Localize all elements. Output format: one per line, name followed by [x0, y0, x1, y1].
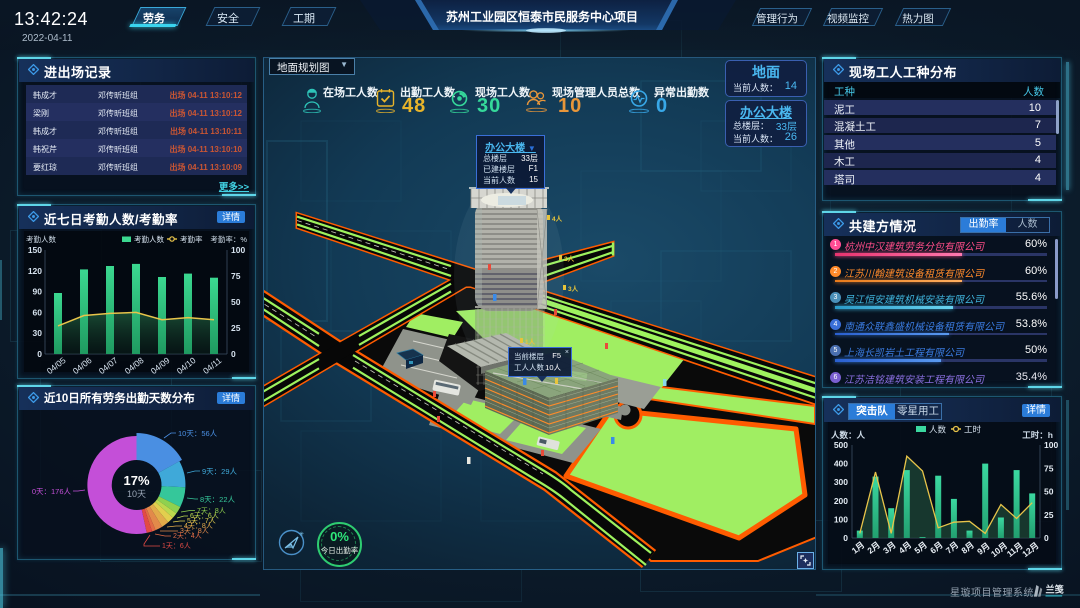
svg-text:兰笺: 兰笺 [1046, 584, 1064, 595]
svg-text:75: 75 [231, 271, 241, 281]
svg-text:50: 50 [1044, 487, 1054, 497]
svg-text:17%: 17% [123, 473, 149, 488]
svg-text:500: 500 [834, 440, 848, 450]
svg-text:90: 90 [33, 287, 43, 297]
svg-text:100: 100 [231, 245, 245, 255]
svg-text:工时: 工时 [964, 425, 982, 435]
svg-text:25: 25 [1044, 510, 1054, 520]
svg-text:8天：22人: 8天：22人 [200, 495, 236, 504]
svg-text:工时：h: 工时：h [1022, 430, 1053, 440]
svg-text:3人: 3人 [568, 284, 579, 293]
svg-text:0: 0 [843, 533, 848, 543]
svg-text:9天：29人: 9天：29人 [202, 467, 238, 476]
svg-text:10天：56人: 10天：56人 [178, 429, 218, 438]
svg-text:400: 400 [834, 459, 848, 469]
svg-text:2天：4人: 2天：4人 [173, 532, 202, 540]
svg-text:考勤率: 考勤率 [180, 234, 203, 244]
svg-text:10天: 10天 [127, 489, 146, 499]
svg-text:1人: 1人 [525, 337, 536, 346]
svg-text:考勤人数: 考勤人数 [26, 234, 56, 244]
svg-text:0天：176人: 0天：176人 [32, 487, 72, 496]
svg-text:1天：6人: 1天：6人 [162, 542, 191, 550]
svg-text:0: 0 [231, 349, 236, 359]
svg-text:考勤率：%: 考勤率：% [210, 234, 247, 244]
svg-text:300: 300 [834, 477, 848, 487]
svg-text:0: 0 [1044, 533, 1049, 543]
svg-text:100: 100 [1044, 440, 1058, 450]
svg-text:60: 60 [33, 307, 43, 317]
svg-text:100: 100 [834, 514, 848, 524]
svg-text:120: 120 [28, 266, 42, 276]
svg-text:75: 75 [1044, 463, 1054, 473]
svg-text:✳: ✳ [299, 531, 304, 538]
svg-text:30: 30 [33, 328, 43, 338]
svg-text:25: 25 [231, 323, 241, 333]
svg-text:4人: 4人 [552, 214, 563, 223]
svg-text:200: 200 [834, 496, 848, 506]
svg-text:2人: 2人 [564, 254, 575, 263]
svg-text:考勤人数: 考勤人数 [134, 234, 164, 244]
svg-text:150: 150 [28, 245, 42, 255]
svg-text:50: 50 [231, 297, 241, 307]
svg-text:人数：人: 人数：人 [831, 430, 866, 440]
svg-text:0: 0 [37, 349, 42, 359]
svg-text:人数: 人数 [929, 425, 947, 435]
